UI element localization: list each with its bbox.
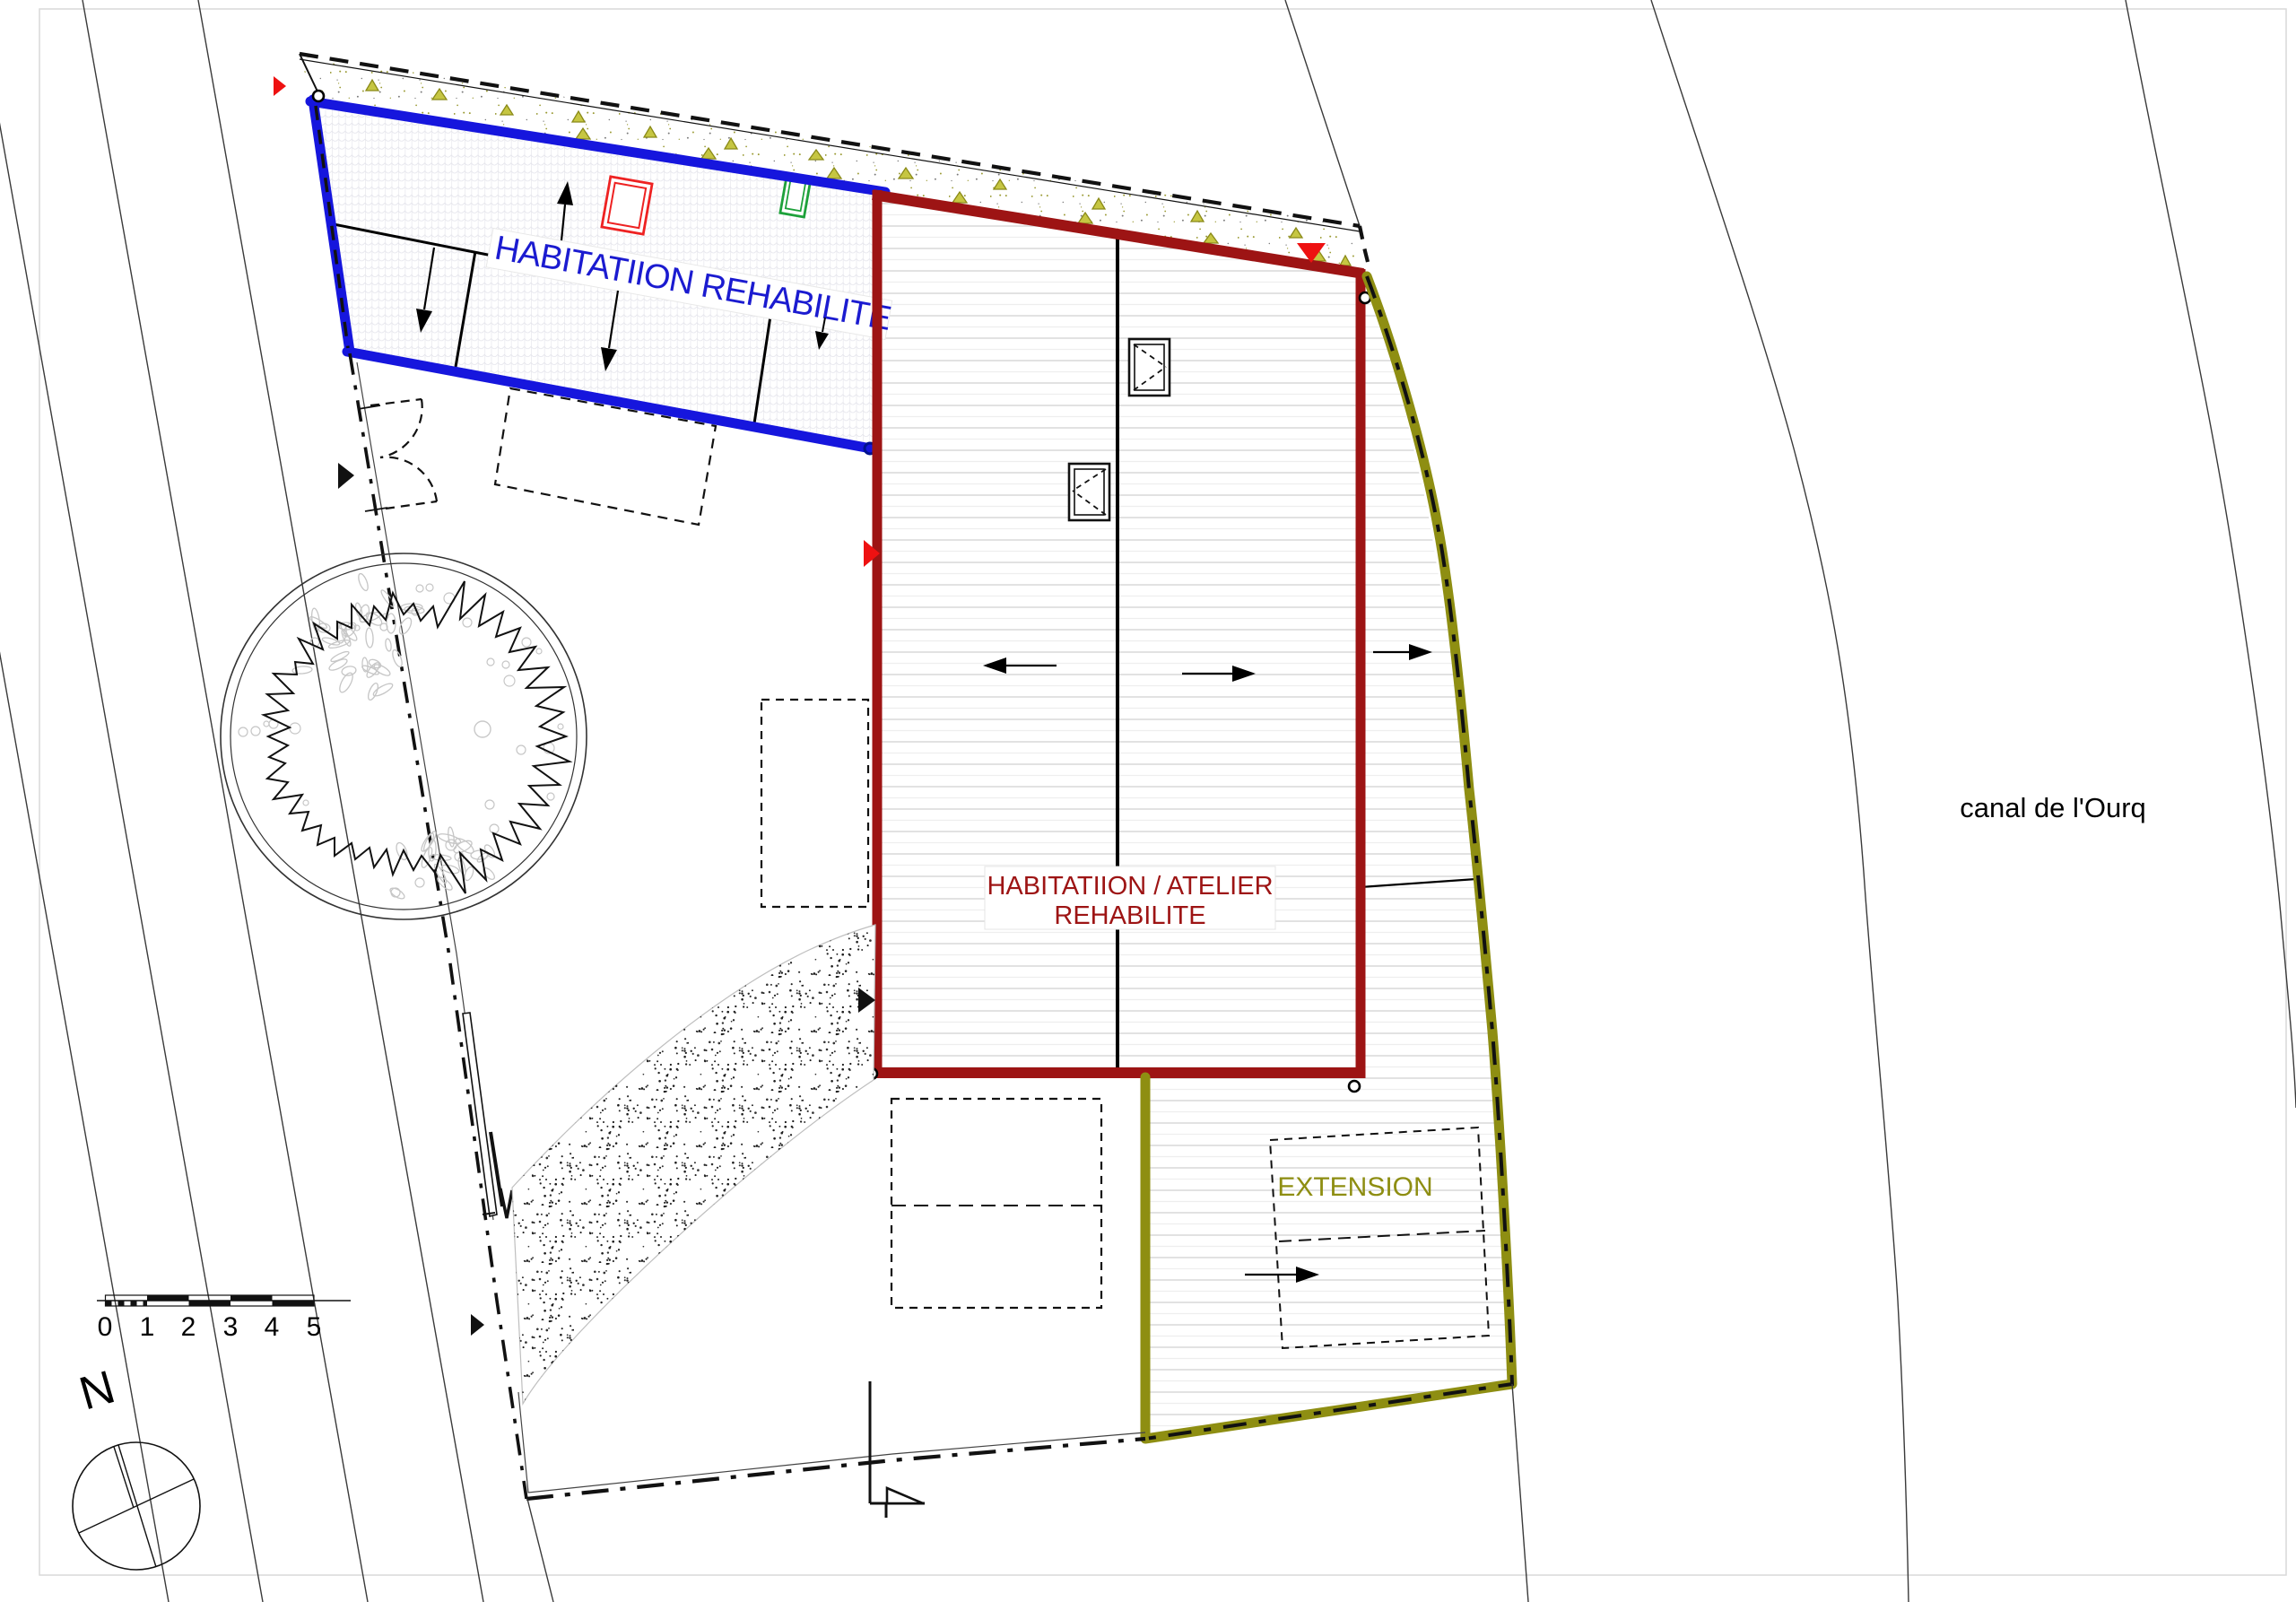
svg-text:1: 1 bbox=[140, 1312, 155, 1342]
svg-text:EXTENSION: EXTENSION bbox=[1277, 1172, 1432, 1202]
svg-text:HABITATIION / ATELIER: HABITATIION / ATELIER bbox=[987, 872, 1273, 901]
svg-text:5: 5 bbox=[307, 1312, 322, 1342]
svg-text:0: 0 bbox=[98, 1312, 113, 1342]
svg-text:4: 4 bbox=[265, 1312, 280, 1342]
svg-text:2: 2 bbox=[181, 1312, 196, 1342]
svg-text:3: 3 bbox=[223, 1312, 239, 1342]
svg-text:canal de l'Ourq: canal de l'Ourq bbox=[1960, 792, 2146, 823]
svg-text:REHABILITE: REHABILITE bbox=[1054, 901, 1205, 930]
